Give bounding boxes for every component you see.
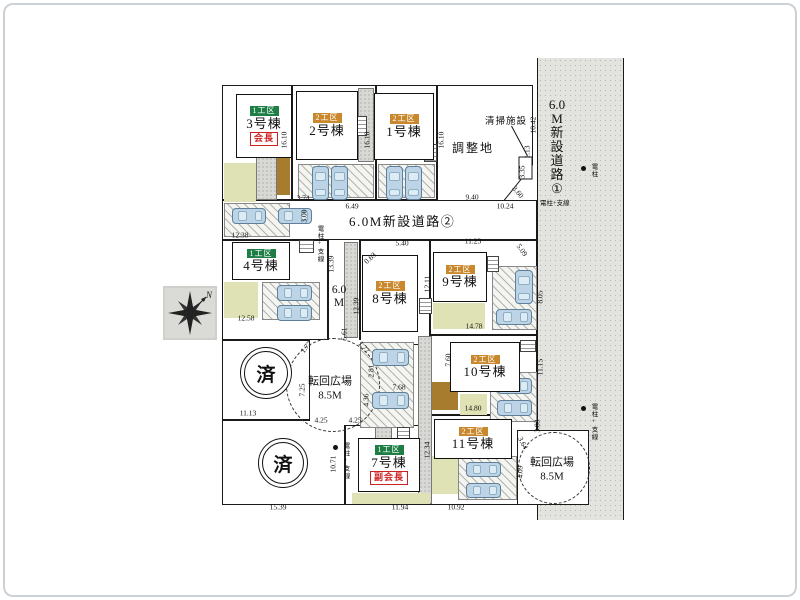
entrance-steps [299,240,314,253]
building-1号棟: 2工区1号棟 [374,93,434,160]
dimension-text: 9.40 [465,193,478,202]
car-icon [515,270,533,304]
dimension-text: 6.49 [345,202,358,211]
building-10号棟: 2工区10号棟 [450,342,520,392]
dimension-text: 7.60 [444,353,453,366]
car-icon [466,483,501,498]
car-icon [372,349,409,366]
car-icon [312,166,329,200]
dimension-text: 12.34 [423,442,432,459]
car-icon [405,166,422,200]
dimension-text: 4.09 [516,465,525,478]
road-1-label: 6.0M新設道路① [545,98,569,196]
dimension-text: 8.05 [536,290,545,303]
building-label: 3号棟 [246,117,282,131]
car-icon [277,305,312,321]
utility-pole-label: 電柱 [588,163,598,178]
utility-pole-label: 電柱+支線 [340,442,350,480]
dimension-text: 16.10 [437,132,446,149]
site-plan: 6.0M新設道路① 調整地 清掃施設 6.0M新設道路② 6.0M N 2工区1… [0,0,800,600]
compass-north-label: N [205,290,213,300]
dimension-text: 12.39 [352,298,361,315]
utility-pole-dot [581,166,586,171]
dimension-text: 3.83 [533,419,542,432]
zone-badge: 2工区 [390,114,419,124]
olive-ground-patch [224,163,256,202]
adjustment-land-label: 調整地 [452,139,494,156]
stipple-ground-patch [256,152,277,200]
road-1-label-char: 道 [550,154,563,168]
dimension-text: 15.39 [270,503,287,512]
dimension-text: 12.11 [423,276,432,293]
dimension-text: 1.13 [523,145,532,158]
turnaround-label: 転回広場 [530,456,574,470]
zone-badge: 2工区 [459,427,488,437]
dimension-text: 10.92 [448,503,465,512]
utility-pole-dot [581,406,586,411]
road-3-label: 6.0M [329,284,349,310]
building-label: 8号棟 [372,292,408,306]
road-1-label-char: 設 [550,140,563,154]
building-4号棟: 1工区4号棟 [232,242,290,280]
dimension-text: 7.68 [392,383,405,392]
turnaround-label: 転回広場 [308,375,352,389]
dimension-text: 11.23 [465,237,482,246]
turnaround-label: 転回広場8.5M [530,456,574,485]
dimension-text: 5.61 [340,327,349,340]
dimension-text: 4.36 [362,393,371,406]
road-1-label-char: M [551,112,563,126]
building-8号棟: 2工区8号棟 [362,255,418,332]
dimension-text: 2.81 [367,364,376,377]
olive-ground-patch [432,456,458,494]
building-label: 2号棟 [309,124,345,138]
dimension-text: 12.58 [238,314,255,323]
road-1-label-char: 6.0 [549,98,565,112]
utility-pole-label: 電柱+支線 [588,403,598,441]
car-icon [372,392,409,409]
road-1-label-char: 路 [550,168,563,182]
zone-badge: 1工区 [375,445,404,455]
road-2-label: 6.0M新設道路② [349,211,455,230]
zone-badge: 2工区 [471,355,500,365]
road-1-label-char: 新 [550,126,563,140]
dimension-text: 14.80 [465,404,482,413]
building-label: 10号棟 [463,365,506,379]
road-1-label-char: ① [551,182,563,196]
car-icon [232,208,266,224]
sold-mark: 済 [262,442,304,484]
car-icon [496,309,532,325]
utility-pole-label: 電柱+支線 [540,197,570,207]
turnaround-size: 8.5M [308,389,352,403]
dimension-text: 14.78 [466,322,483,331]
role-tag: 副会長 [370,471,408,485]
entrance-steps [487,256,499,272]
dimension-text: 3.00 [300,209,309,222]
entrance-steps [419,298,432,314]
building-label: 1号棟 [386,125,422,139]
dimension-text: 10.71 [329,456,338,473]
zone-badge: 1工区 [247,249,276,259]
building-label: 7号棟 [371,456,407,470]
zone-badge: 2工区 [313,113,342,123]
utility-pole-dot [333,445,338,450]
dimension-text: 12.38 [232,231,249,240]
sold-mark: 済 [244,351,288,395]
dimension-text: 11.13 [240,409,257,418]
sold-circle: 済 [240,347,292,399]
building-7号棟: 1工区7号棟副会長 [358,438,420,492]
turnaround-label: 転回広場8.5M [308,375,352,404]
car-icon [497,400,532,416]
building-label: 11号棟 [452,437,495,451]
turnaround-size: 8.5M [530,470,574,484]
building-label: 9号棟 [442,275,478,289]
dimension-text: 3.74 [296,194,309,203]
dimension-text: 13.39 [327,256,336,273]
dimension-text: 16.10 [363,132,372,149]
building-11号棟: 2工区11号棟 [434,419,512,459]
road-3-label-char: M [334,297,344,310]
utility-pole-label: 電柱+支線 [314,225,324,263]
compass-icon: N [163,286,217,340]
role-tag: 会長 [250,132,278,146]
dimension-text: 16.10 [280,132,289,149]
dimension-text: 11.94 [392,503,409,512]
sold-circle: 済 [258,438,308,488]
stipple-ground-patch [418,336,432,504]
dimension-text: 10.24 [497,202,514,211]
dimension-text: 11.15 [536,359,545,376]
car-icon [277,285,312,301]
car-icon [331,166,348,200]
building-9号棟: 2工区9号棟 [433,252,487,302]
dimension-text: 4.25 [314,416,327,425]
cleaning-facility-label: 清掃施設 [485,113,527,127]
dimension-text: 4.25 [348,416,361,425]
entrance-steps [520,340,536,352]
dimension-text: 10.42 [529,117,538,134]
dimension-text: 7.25 [298,383,307,396]
dimension-text: 5.40 [395,239,408,248]
car-icon [386,166,403,200]
car-icon [466,462,501,477]
dimension-text: 3.35 [518,165,527,178]
building-label: 4号棟 [243,259,279,273]
building-2号棟: 2工区2号棟 [296,91,358,160]
zone-badge: 1工区 [250,106,279,116]
zone-badge: 2工区 [376,281,405,291]
zone-badge: 2工区 [446,265,475,275]
road-3-label-char: 6.0 [332,284,346,297]
brown-ground-patch [277,155,290,195]
